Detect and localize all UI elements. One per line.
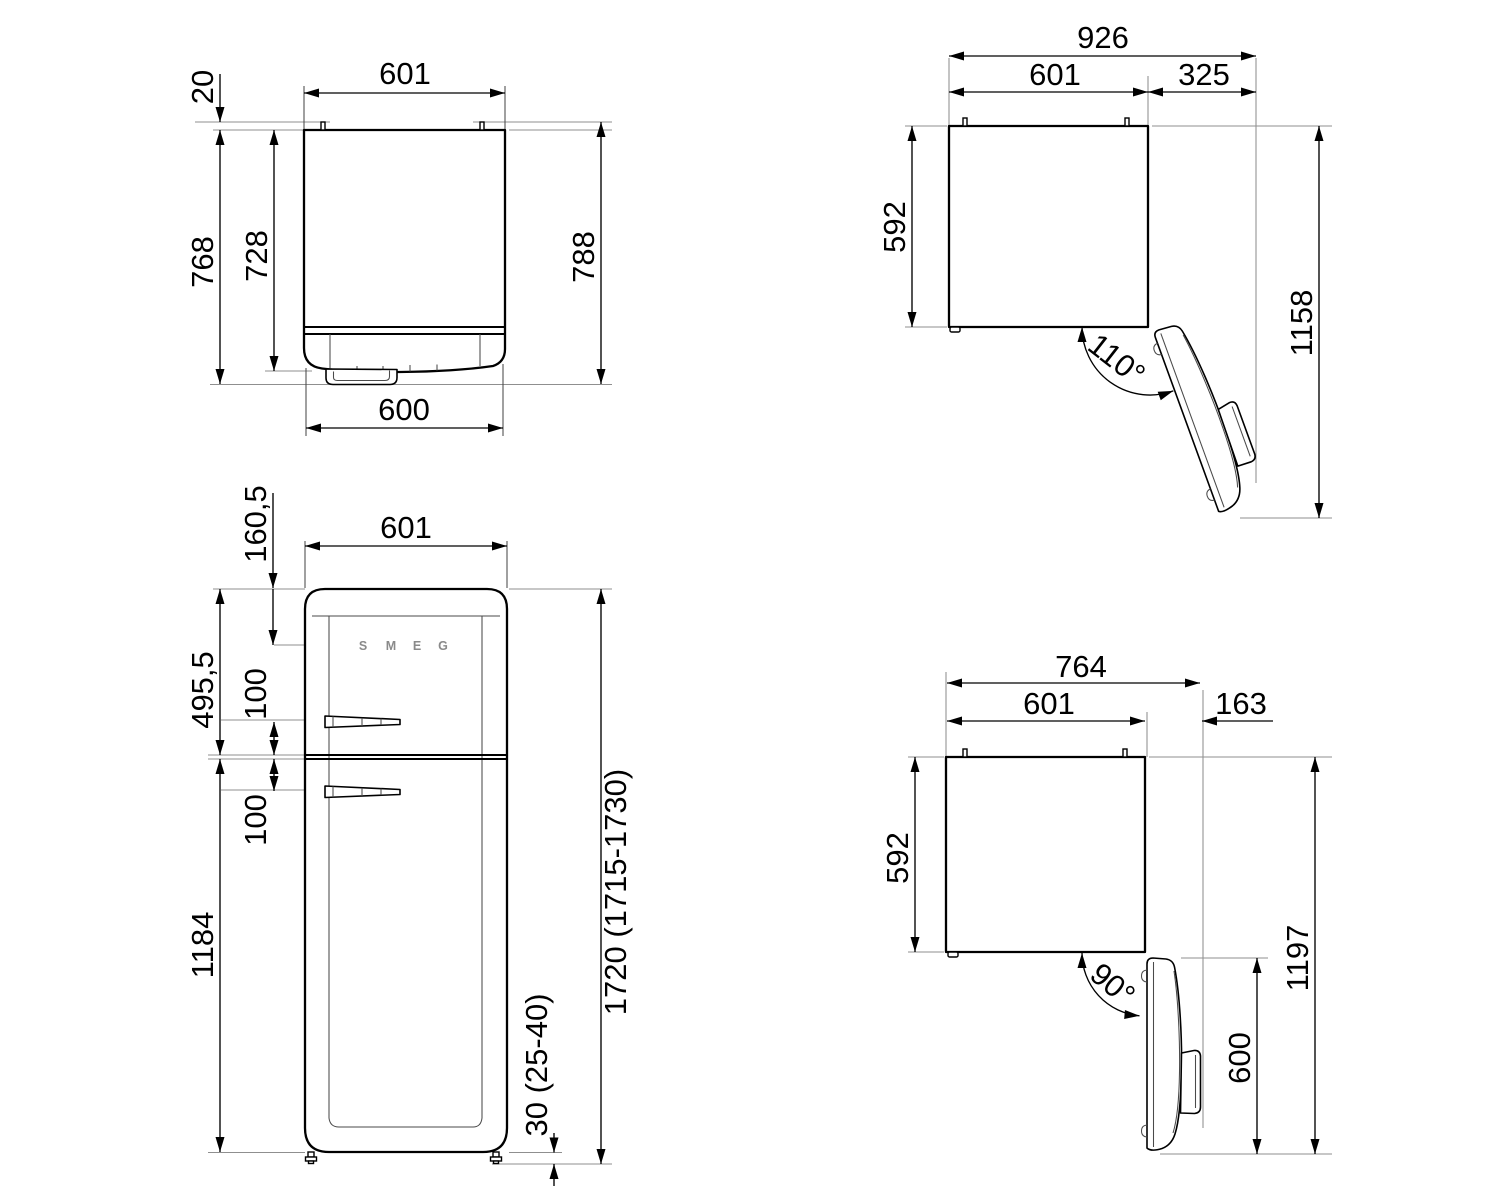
hinge-pin-left-110 <box>963 118 967 126</box>
dim-body-width-110: 601 <box>1029 57 1081 92</box>
foot-mark-90 <box>948 952 958 957</box>
logo-letter-m: M <box>386 639 396 653</box>
logo-letter-e: E <box>413 639 421 653</box>
hinge-pin-left-90 <box>963 749 967 757</box>
dim-total-depth-90: 1197 <box>1280 925 1315 992</box>
cabinet-top-outline <box>304 130 505 372</box>
dim-depth-body: 768 <box>185 236 220 288</box>
dim-door-width-90: 600 <box>1222 1032 1257 1084</box>
door-handle-90 <box>1181 1050 1201 1113</box>
dim-door-clearance-90: 163 <box>1215 686 1267 721</box>
dim-body-depth-110: 592 <box>877 201 912 253</box>
dim-freezer-section: 495,5 <box>185 651 220 729</box>
cabinet-top-outline-110 <box>949 126 1148 327</box>
hinge-pin-right-90 <box>1123 749 1127 757</box>
dim-feet-height: 30 (25-40) <box>519 993 554 1136</box>
dim-handle-upper: 100 <box>238 668 273 720</box>
foot-mark-110 <box>950 327 960 332</box>
door-handle-top-view <box>326 369 397 385</box>
technical-drawing-page: 20 601 768 728 788 600 926 <box>0 0 1500 1200</box>
dim-depth-total: 788 <box>566 231 601 283</box>
dim-logo-from-top: 160,5 <box>238 485 273 563</box>
dim-total-width-110: 926 <box>1077 20 1129 55</box>
dim-body-width-90: 601 <box>1023 686 1075 721</box>
dim-total-depth-110: 1158 <box>1284 290 1319 357</box>
hinge-pin-right-110 <box>1125 118 1129 126</box>
cabinet-top-outline-90 <box>946 757 1145 952</box>
dim-width-top: 601 <box>379 56 431 91</box>
dim-front-width: 601 <box>380 510 432 545</box>
logo-letter-g: G <box>438 639 448 653</box>
hinge-pin-left <box>321 122 325 130</box>
dim-depth-door: 728 <box>239 230 274 282</box>
dim-door-clearance-110: 325 <box>1178 57 1230 92</box>
dim-fridge-section: 1184 <box>185 912 220 979</box>
dim-total-height: 1720 (1715-1730) <box>598 769 633 1015</box>
page-background <box>0 0 1500 1200</box>
dim-pin-height: 20 <box>185 70 220 104</box>
dimension-drawing-canvas: 20 601 768 728 788 600 926 <box>0 0 1500 1200</box>
cabinet-front-outline <box>305 589 507 1152</box>
dim-total-width-90: 764 <box>1055 649 1107 684</box>
dim-handle-lower: 100 <box>238 794 273 846</box>
dim-door-width: 600 <box>378 392 430 427</box>
dim-body-depth-90: 592 <box>880 832 915 884</box>
hinge-pin-right <box>480 122 484 130</box>
logo-letter-s: S <box>359 639 367 653</box>
